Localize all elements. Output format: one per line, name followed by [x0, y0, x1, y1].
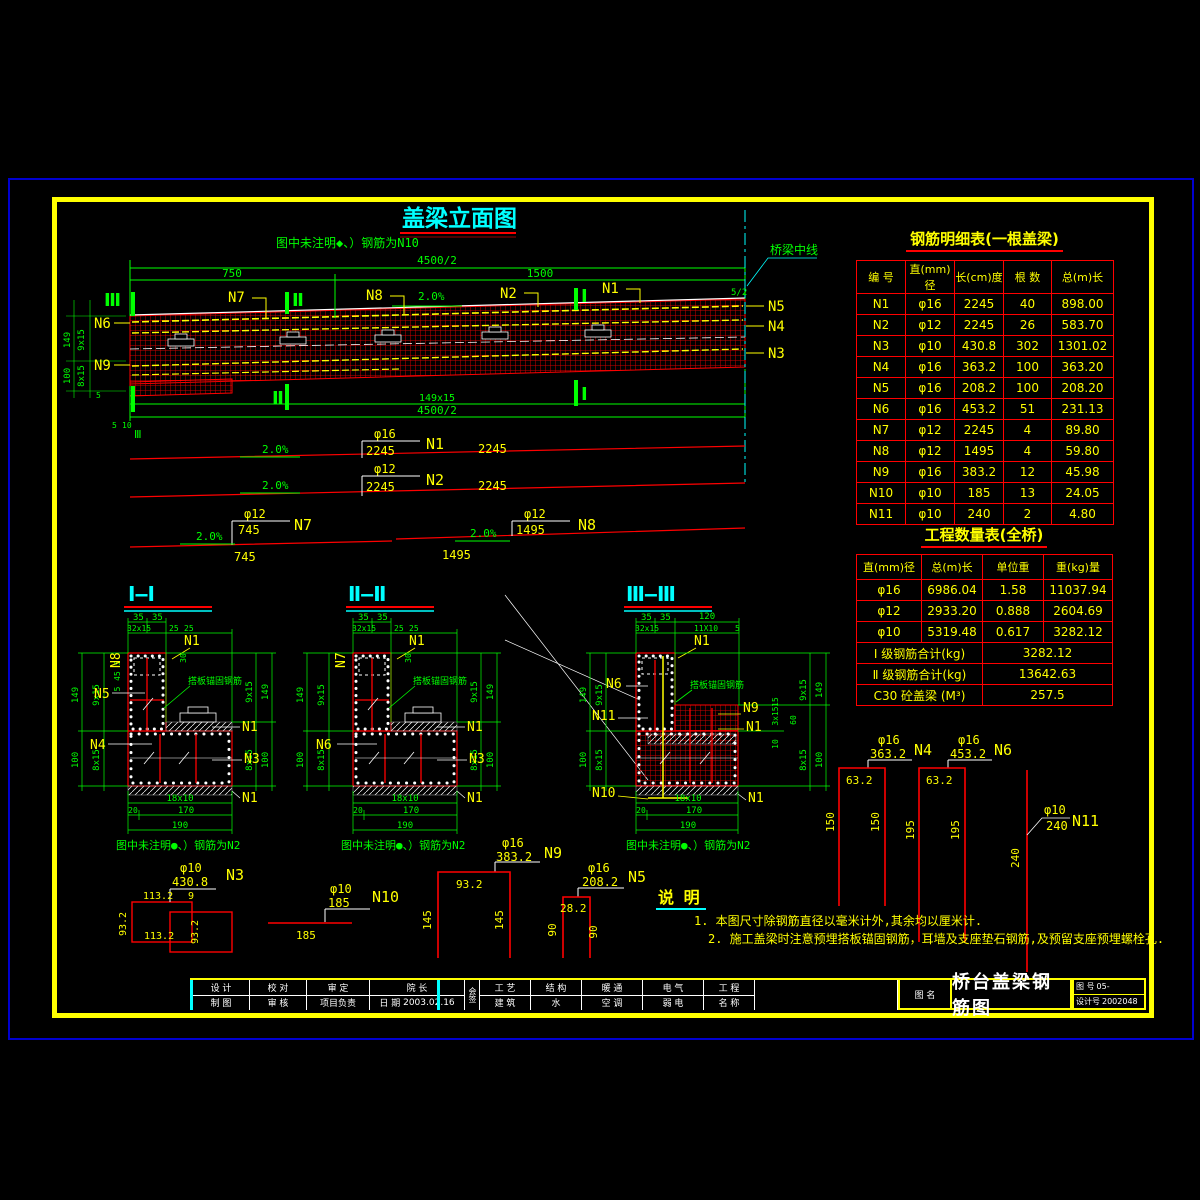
- table-cell: N4: [857, 357, 906, 378]
- tb-col-approve: 审 定 项目负责: [307, 980, 370, 1010]
- rebar-label: N4: [90, 738, 106, 753]
- dim-label: 170: [403, 806, 419, 816]
- rebar-label: N1: [694, 634, 710, 649]
- table-row: φ105319.480.6173282.12: [857, 622, 1113, 643]
- table-cell: 26: [1004, 315, 1052, 336]
- tb-label: 水: [531, 995, 581, 1011]
- table-row: C30 砼盖梁 (M³)257.5: [857, 685, 1113, 706]
- table-cell: 2933.20: [922, 601, 983, 622]
- dim-label: 5: [112, 421, 117, 430]
- table-row: Ⅰ 级钢筋合计(kg)3282.12: [857, 643, 1113, 664]
- table-cell: 453.2: [955, 399, 1004, 420]
- dim-label: 149: [296, 687, 306, 703]
- bar-dia: φ16: [374, 427, 396, 441]
- dim-label: 35: [641, 613, 652, 623]
- section-mark: Ⅱ: [272, 388, 284, 409]
- dim-label: 750: [222, 267, 242, 280]
- rebar-label: N10: [592, 786, 615, 801]
- section-mark: Ⅲ: [104, 290, 121, 311]
- table-cell: 3282.12: [983, 643, 1113, 664]
- shape-dim: 240: [1009, 848, 1022, 868]
- bar-len: 2245: [478, 479, 507, 493]
- rebar-label: N6: [94, 316, 111, 332]
- tb-date-row: 日 期 2003.02.16: [370, 995, 464, 1011]
- tb-date: 2003.02.16: [403, 998, 455, 1008]
- rebar-label: N1: [242, 791, 258, 806]
- table-cell: 40: [1004, 294, 1052, 315]
- design-no-label: 设计号: [1076, 996, 1100, 1007]
- table-cell: 6986.04: [922, 580, 983, 601]
- table-row: N8φ121495459.80: [857, 441, 1114, 462]
- table-cell: N3: [857, 336, 906, 357]
- dim-label: 100: [815, 752, 825, 768]
- table-cell: 383.2: [955, 462, 1004, 483]
- section-title: Ⅰ—Ⅰ: [128, 582, 155, 606]
- tb-number-stack: 图 号 05- 设计号 2002048: [1072, 980, 1144, 1008]
- table-cell: 257.5: [983, 685, 1113, 706]
- bar-label: N2: [426, 471, 444, 489]
- dim-label: 149: [486, 684, 496, 700]
- table-row: N6φ16453.251231.13: [857, 399, 1114, 420]
- dim-label: 45: [113, 671, 122, 681]
- dim-label: 5/2: [731, 288, 747, 298]
- tb-label: 审 定: [307, 980, 369, 995]
- table-row: φ122933.200.8882604.69: [857, 601, 1113, 622]
- table-cell: 1.58: [983, 580, 1044, 601]
- bar-dia: φ12: [524, 507, 546, 521]
- table-cell: 59.80: [1052, 441, 1114, 462]
- dim-label: 100: [296, 752, 306, 768]
- table-cell: 2245: [955, 420, 1004, 441]
- dim-label: 30: [404, 653, 413, 663]
- dim-label: 35: [660, 613, 671, 623]
- rebar-label: N8: [109, 652, 124, 668]
- rebar-label: N1: [748, 791, 764, 806]
- tb-col-date: 院 长 日 期 2003.02.16: [370, 980, 465, 1010]
- table-cell: 24.05: [1052, 483, 1114, 504]
- tb-label: 空 调: [582, 995, 642, 1011]
- dim-label: 35: [377, 613, 388, 623]
- table-cell: Ⅰ 级钢筋合计(kg): [857, 643, 983, 664]
- bar-len: 2245: [366, 444, 395, 458]
- slope-label: 2.0%: [470, 527, 497, 540]
- dim-label: 190: [172, 821, 188, 831]
- table-row: N10φ101851324.05: [857, 483, 1114, 504]
- rebar-label: N9: [94, 358, 111, 374]
- rebar-label: N1: [184, 634, 200, 649]
- table-header-cell: 重(kg)量: [1044, 555, 1113, 580]
- table-cell: φ16: [906, 462, 955, 483]
- table-cell: 4: [1004, 441, 1052, 462]
- cad-drawing: 盖梁立面图 图中未注明◆、）钢筋为N10: [0, 0, 1200, 1200]
- table-row: φ166986.041.5811037.94: [857, 580, 1113, 601]
- dim-label: 170: [686, 806, 702, 816]
- notes: 说 明 1. 本图尺寸除钢筋直径以毫米计外,其余均以厘米计. 2. 施工盖梁时注…: [656, 888, 1164, 946]
- rebar-schedule-table: 编 号直(mm)径长(cm)度根 数总(m)长 N1φ16224540898.0…: [856, 260, 1114, 525]
- shape-dia: φ10: [330, 882, 352, 896]
- table-cell: φ16: [906, 357, 955, 378]
- table-cell: 208.20: [1052, 378, 1114, 399]
- shape-label: N5: [628, 868, 646, 886]
- tb-label: 工 程: [704, 980, 754, 995]
- rebar-label: N1: [746, 720, 762, 735]
- rebar-label: N2: [500, 286, 517, 302]
- table-cell: 302: [1004, 336, 1052, 357]
- table-cell: 240: [955, 504, 1004, 525]
- shape-dim: 145: [493, 910, 506, 930]
- section-mark: Ⅰ: [581, 286, 588, 307]
- table-cell: φ12: [857, 601, 922, 622]
- dim-label: 9x15: [317, 684, 327, 706]
- section-title: Ⅱ—Ⅱ: [348, 582, 386, 606]
- dim-label: 100: [261, 752, 271, 768]
- bar-dia: φ12: [374, 462, 396, 476]
- table-header-cell: 直(mm)径: [857, 555, 922, 580]
- table-cell: 4: [1004, 420, 1052, 441]
- rebar-table-title: 钢筋明细表(一根盖梁): [856, 228, 1113, 249]
- table-cell: N9: [857, 462, 906, 483]
- shape-dim: 90: [546, 923, 559, 936]
- dim-label: 25: [169, 624, 179, 633]
- shape-dim: 93.2: [118, 912, 129, 936]
- table-cell: 3282.12: [1044, 622, 1113, 643]
- bar-detail-lines: φ16 2245 N1 2245 2.0% φ12 2245 N2 2245 2…: [130, 427, 745, 564]
- tb-label: 日 期: [379, 996, 400, 1009]
- dim-label: 10: [771, 739, 780, 749]
- tb-label: 暖 通: [582, 980, 642, 995]
- table-cell: φ10: [906, 336, 955, 357]
- table-cell: 13: [1004, 483, 1052, 504]
- shape-dim: 195: [949, 820, 962, 840]
- tb-label: 审 核: [250, 995, 306, 1011]
- dim-label: 9x15: [470, 681, 480, 703]
- dim-label: 8x15: [77, 365, 87, 387]
- tb-col-hvac: 暖 通 空 调: [582, 980, 643, 1010]
- rebar-label: N1: [409, 634, 425, 649]
- dim-label: 9x15: [77, 329, 87, 351]
- anchor-note: 搭板锚固钢筋: [690, 679, 744, 691]
- table-cell: 430.8: [955, 336, 1004, 357]
- table-cell: 0.888: [983, 601, 1044, 622]
- table-header-cell: 单位重: [983, 555, 1044, 580]
- dim-label: 5: [735, 624, 740, 633]
- elevation-title: 盖梁立面图: [402, 205, 517, 232]
- dim-label: 149: [71, 687, 81, 703]
- rebar-label: N6: [316, 738, 332, 753]
- shape-label: N9: [544, 844, 562, 862]
- table-cell: 185: [955, 483, 1004, 504]
- dim-label: 149: [63, 332, 73, 348]
- dim-label: 35: [133, 613, 144, 623]
- table-cell: 208.2: [955, 378, 1004, 399]
- table-cell: φ16: [906, 294, 955, 315]
- rebar-label: N11: [592, 709, 615, 724]
- table-cell: φ10: [906, 504, 955, 525]
- dim-label: 1500: [527, 267, 554, 280]
- slope-label: 2.0%: [262, 479, 289, 492]
- rebar-label: N7: [228, 290, 245, 306]
- dim-label: 32x15: [352, 624, 376, 633]
- shape-dia: φ16: [958, 733, 980, 747]
- table-cell: N8: [857, 441, 906, 462]
- anchor-note: 搭板锚固钢筋: [413, 675, 467, 687]
- table-cell: φ12: [906, 315, 955, 336]
- tb-col-structure: 结 构 水: [531, 980, 582, 1010]
- dim-label: 10: [122, 421, 132, 430]
- bar-label: N1: [426, 435, 444, 453]
- table-cell: 100: [1004, 378, 1052, 399]
- shape-dim: 9: [188, 891, 194, 902]
- tb-col-craft: 工 艺 建 筑: [480, 980, 531, 1010]
- tb-spacer: [755, 980, 898, 1010]
- design-no: 2002048: [1102, 997, 1138, 1006]
- table-cell: N1: [857, 294, 906, 315]
- shape-dia: φ16: [502, 836, 524, 850]
- shape-dim: 93.2: [190, 920, 201, 944]
- section-title: Ⅲ—Ⅲ: [626, 582, 676, 606]
- anchor-note: 搭板锚固钢筋: [188, 675, 242, 687]
- dim-label: 100: [579, 752, 589, 768]
- table-cell: 13642.63: [983, 664, 1113, 685]
- table-cell: φ16: [906, 378, 955, 399]
- tb-label: 制 图: [193, 995, 249, 1011]
- table-cell: 11037.94: [1044, 580, 1113, 601]
- dim-label: 3x15: [771, 706, 780, 725]
- tb-label: 校 对: [250, 980, 306, 995]
- table-row: N11φ1024024.80: [857, 504, 1114, 525]
- bar-len: 1495: [516, 523, 545, 537]
- rebar-label: N6: [606, 677, 622, 692]
- dim-label: 18x10: [674, 794, 701, 804]
- dim-label: 190: [397, 821, 413, 831]
- table-cell: N2: [857, 315, 906, 336]
- bar-len: 2245: [478, 442, 507, 456]
- shape-label: N6: [994, 741, 1012, 759]
- tb-label: 名 称: [704, 995, 754, 1011]
- section-2-2: Ⅱ—Ⅱ 35 35 32x: [296, 582, 501, 852]
- dim-label: 149x15: [419, 393, 455, 404]
- title-block: 设 计 制 图 校 对 审 核 审 定 项目负责 院 长 日 期 2003.02…: [190, 978, 1146, 1010]
- dim-label: 35: [358, 613, 369, 623]
- section-1-1: Ⅰ—Ⅰ 35 35 32x: [71, 582, 276, 852]
- shape-dim: 150: [869, 812, 882, 832]
- tb-label: 弱 电: [643, 995, 703, 1011]
- shape-total: 208.2: [582, 875, 618, 889]
- bar-label: N7: [294, 516, 312, 534]
- table-cell: 2245: [955, 294, 1004, 315]
- dim-label: 100: [63, 368, 73, 384]
- drawing-name-label: 图 名: [900, 980, 952, 1008]
- bar-len: 2245: [366, 480, 395, 494]
- dim-label: 149: [579, 687, 589, 703]
- table-cell: 51: [1004, 399, 1052, 420]
- dim-label: 170: [178, 806, 194, 816]
- table-cell: 1495: [955, 441, 1004, 462]
- table-header-cell: 总(m)长: [1052, 261, 1114, 294]
- shape-total: 383.2: [496, 850, 532, 864]
- table-cell: 0.617: [983, 622, 1044, 643]
- rebar-label: N9: [743, 701, 759, 716]
- table-row: N7φ122245489.80: [857, 420, 1114, 441]
- table-cell: φ12: [906, 420, 955, 441]
- dim-label: 30: [179, 653, 188, 663]
- shape-total: 453.2: [950, 747, 986, 761]
- elevation-note: 图中未注明◆、）钢筋为N10: [276, 235, 419, 250]
- tb-label: 院 长: [370, 980, 464, 995]
- table-cell: 4.80: [1052, 504, 1114, 525]
- shape-total: 185: [328, 896, 350, 910]
- dim-label: 25: [409, 624, 419, 633]
- shape-total: 240: [1046, 819, 1068, 833]
- shape-label: N10: [372, 888, 399, 906]
- table-cell: 2604.69: [1044, 601, 1113, 622]
- table-cell: 583.70: [1052, 315, 1114, 336]
- notes-title: 说 明: [658, 888, 700, 907]
- dim-label: 9x15: [245, 681, 255, 703]
- shape-dim: 63.2: [846, 774, 873, 787]
- table-header-cell: 长(cm)度: [955, 261, 1004, 294]
- dim-label: 4500/2: [417, 404, 457, 417]
- rebar-label: N1: [242, 720, 258, 735]
- dim-label: 149: [261, 684, 271, 700]
- dim-label: 20: [636, 806, 646, 815]
- shape-dim: 185: [296, 929, 316, 942]
- title-block-accent: [190, 980, 193, 1010]
- table-header-row: 直(mm)径总(m)长单位重重(kg)量: [857, 555, 1113, 580]
- dim-label: 5: [96, 391, 101, 400]
- tb-col-design: 设 计 制 图: [193, 980, 250, 1010]
- table-cell: Ⅱ 级钢筋合计(kg): [857, 664, 983, 685]
- title-block-accent: [437, 980, 440, 1010]
- table-cell: 2245: [955, 315, 1004, 336]
- table-cell: N6: [857, 399, 906, 420]
- shape-total: 363.2: [870, 747, 906, 761]
- rebar-label: N3: [469, 752, 485, 767]
- rebar-label: N4: [768, 319, 785, 335]
- tb-col-check: 校 对 审 核: [250, 980, 307, 1010]
- dim-label: 35: [152, 613, 163, 623]
- section-mark: Ⅰ: [581, 384, 588, 405]
- shape-dia: φ16: [878, 733, 900, 747]
- rebar-label: N5: [768, 299, 785, 315]
- table-row: N3φ10430.83021301.02: [857, 336, 1114, 357]
- table-row: N2φ12224526583.70: [857, 315, 1114, 336]
- shape-dim: 93.2: [456, 878, 483, 891]
- dim-label: 5: [113, 686, 122, 691]
- shape-dia: φ16: [588, 861, 610, 875]
- table-cell: N10: [857, 483, 906, 504]
- table-cell: 5319.48: [922, 622, 983, 643]
- table-cell: 100: [1004, 357, 1052, 378]
- table-cell: 1301.02: [1052, 336, 1114, 357]
- dim-label: 9x15: [799, 679, 809, 701]
- slope-label: 2.0%: [262, 443, 289, 456]
- rebar-label: N1: [467, 720, 483, 735]
- bar-dia: φ12: [244, 507, 266, 521]
- dim-label: 120: [699, 612, 715, 622]
- dim-label: 20: [353, 806, 363, 815]
- rebar-label: N3: [244, 752, 260, 767]
- table-cell: 12: [1004, 462, 1052, 483]
- drawing-no: 05-: [1097, 982, 1110, 991]
- section-3-3: Ⅲ—Ⅲ 35 35: [505, 582, 830, 852]
- table-cell: 89.80: [1052, 420, 1114, 441]
- shape-dia: φ10: [1044, 803, 1066, 817]
- table-cell: N5: [857, 378, 906, 399]
- tb-label: 设 计: [193, 980, 249, 995]
- rebar-label: N1: [467, 791, 483, 806]
- tb-label: 电 气: [643, 980, 703, 995]
- dim-label: 4500/2: [417, 254, 457, 267]
- table-header-cell: 根 数: [1004, 261, 1052, 294]
- shape-dim: 150: [824, 812, 837, 832]
- dim-label: 9x15: [595, 684, 605, 706]
- shape-dim: 28.2: [560, 902, 587, 915]
- dim-label: 18x10: [391, 794, 418, 804]
- section-mark: Ⅲ: [134, 428, 142, 441]
- dim-label: 190: [680, 821, 696, 831]
- slope-label: 2.0%: [418, 290, 445, 303]
- dim-label: 32x15: [127, 624, 151, 633]
- table-cell: 45.98: [1052, 462, 1114, 483]
- shape-dim: 113.2: [144, 931, 174, 942]
- centerline-label: 桥梁中线: [770, 242, 818, 257]
- bar-len: 745: [238, 523, 260, 537]
- tb-countersign: 会签: [465, 980, 480, 1010]
- dim-label: 100: [71, 752, 81, 768]
- table-row: Ⅱ 级钢筋合计(kg)13642.63: [857, 664, 1113, 685]
- tb-label: 项目负责: [307, 995, 369, 1011]
- section-note: 图中未注明●、）钢筋为N2: [116, 838, 240, 852]
- slope-label: 2.0%: [196, 530, 223, 543]
- table-cell: φ10: [857, 622, 922, 643]
- tb-label: 结 构: [531, 980, 581, 995]
- section-note: 图中未注明●、）钢筋为N2: [341, 838, 465, 852]
- table-header-cell: 总(m)长: [922, 555, 983, 580]
- dim-label: 18x10: [166, 794, 193, 804]
- bar-label: N8: [578, 516, 596, 534]
- table-cell: C30 砼盖梁 (M³): [857, 685, 983, 706]
- shape-label: N3: [226, 866, 244, 884]
- table-cell: φ10: [906, 483, 955, 504]
- dim-label: 8x15: [799, 749, 809, 771]
- section-mark: Ⅱ: [292, 290, 304, 311]
- drawing-no-label: 图 号: [1076, 981, 1095, 992]
- rebar-label: N1: [602, 281, 619, 297]
- shape-dim: 63.2: [926, 774, 953, 787]
- shape-label: N4: [914, 741, 932, 759]
- rebar-label: N7: [334, 652, 349, 668]
- rebar-label: N5: [94, 687, 110, 702]
- table-cell: φ16: [906, 399, 955, 420]
- dim-label: 149: [815, 682, 825, 698]
- table-cell: N11: [857, 504, 906, 525]
- dim-label: 8x15: [595, 749, 605, 771]
- tb-col-project: 工 程 名 称: [704, 980, 755, 1010]
- note-item: 1. 本图尺寸除钢筋直径以毫米计外,其余均以厘米计.: [694, 913, 982, 928]
- shape-label: N11: [1072, 812, 1099, 830]
- table-cell: 898.00: [1052, 294, 1114, 315]
- table-row: N9φ16383.21245.98: [857, 462, 1114, 483]
- table-row: N4φ16363.2100363.20: [857, 357, 1114, 378]
- note-item: 2. 施工盖梁时注意预埋搭板锚固钢筋，耳墙及支座垫石钢筋,及预留支座预埋螺栓孔.: [708, 931, 1164, 946]
- rebar-label: N3: [768, 346, 785, 362]
- tb-label: 建 筑: [480, 995, 530, 1011]
- table-row: N1φ16224540898.00: [857, 294, 1114, 315]
- dim-label: 25: [394, 624, 404, 633]
- shape-dia: φ10: [180, 861, 202, 875]
- table-cell: 231.13: [1052, 399, 1114, 420]
